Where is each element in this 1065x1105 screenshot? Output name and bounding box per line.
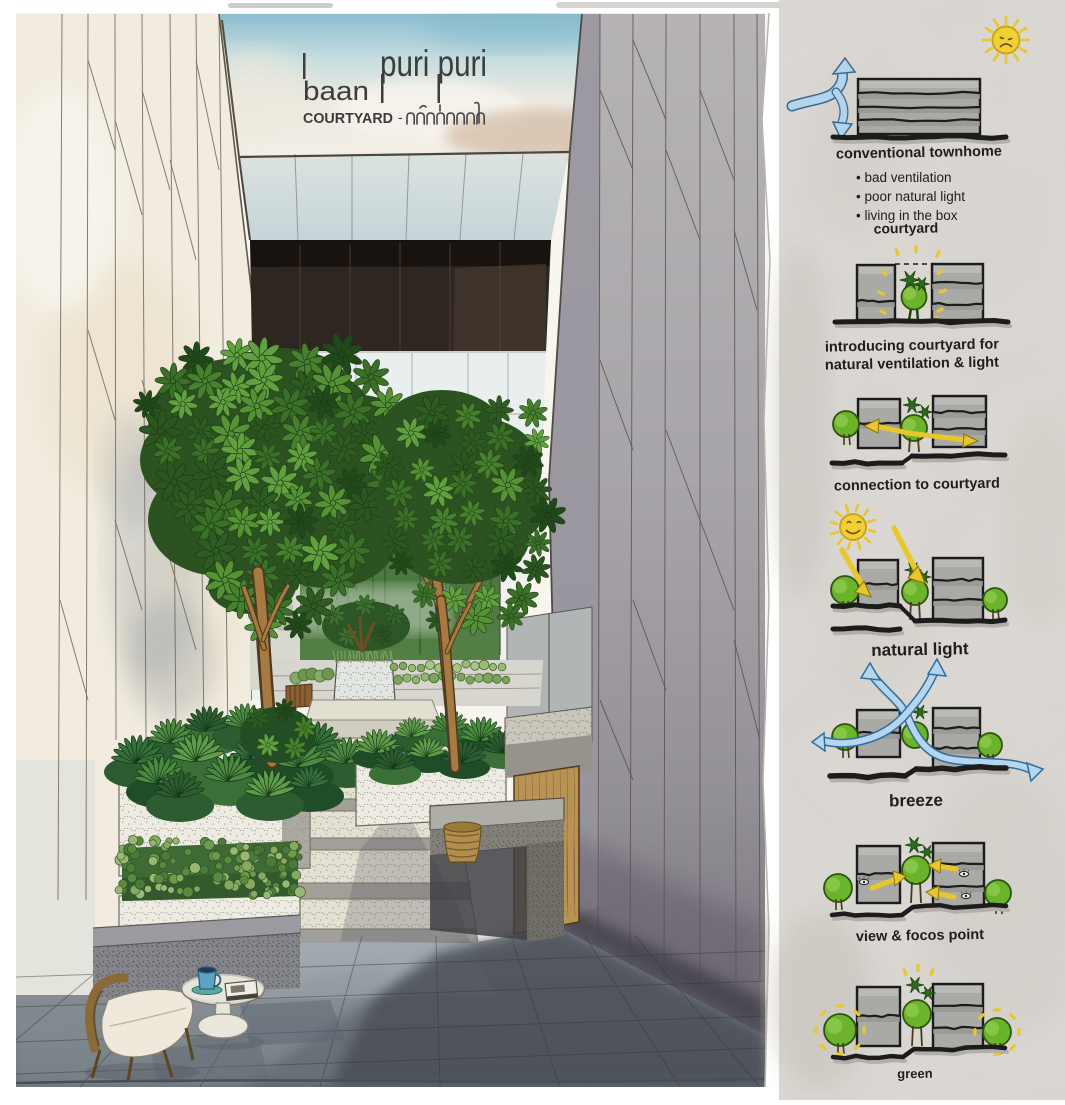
svg-text:introducing courtyard for: introducing courtyard for bbox=[825, 336, 1000, 355]
svg-text:-: - bbox=[398, 109, 403, 125]
svg-text:baan: baan bbox=[303, 76, 369, 106]
svg-text:natural ventilation & light: natural ventilation & light bbox=[825, 354, 999, 373]
svg-text:breeze: breeze bbox=[889, 791, 943, 811]
svg-text:natural light: natural light bbox=[871, 639, 969, 660]
svg-text:view & focos point: view & focos point bbox=[856, 927, 985, 945]
svg-text:• bad ventilation: • bad ventilation bbox=[856, 170, 952, 185]
svg-text:COURTYARD: COURTYARD bbox=[303, 111, 393, 127]
svg-text:conventional townhome: conventional townhome bbox=[836, 144, 1002, 163]
svg-text:connection to courtyard: connection to courtyard bbox=[834, 476, 1000, 495]
svg-text:courtyard: courtyard bbox=[873, 219, 938, 236]
svg-text:• poor natural light: • poor natural light bbox=[856, 189, 965, 204]
svg-text:puri puri: puri puri bbox=[380, 43, 487, 84]
svg-text:green: green bbox=[897, 1066, 933, 1082]
